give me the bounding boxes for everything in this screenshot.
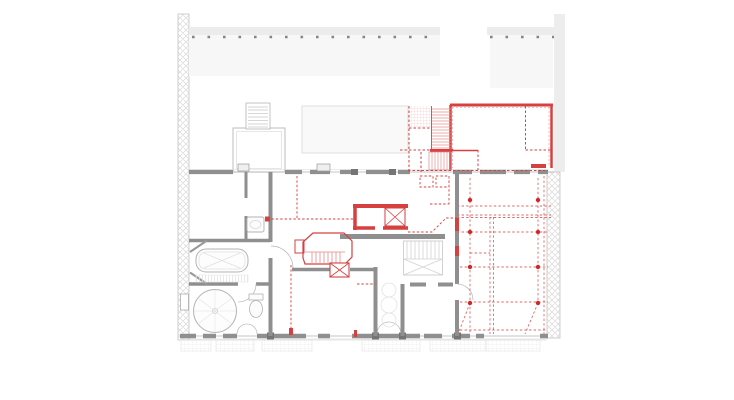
annex-grid-corner: [409, 106, 431, 127]
vestibule-ornament: [382, 313, 396, 327]
apron: [362, 340, 420, 351]
left-hatch-wall: [178, 14, 189, 340]
porch-stair-treads: [248, 107, 268, 127]
right-wall-strip: [554, 14, 565, 172]
vestibule-ornament: [382, 283, 396, 297]
red-wall-overlay: [455, 246, 459, 256]
toilet-bowl: [250, 301, 263, 318]
vanity: [247, 217, 264, 232]
vestibule-ornament: [381, 297, 397, 313]
annex-lower-stair-treads: [432, 152, 447, 170]
wall-pillar: [389, 169, 396, 175]
annex-stair-treads: [432, 109, 451, 148]
annex-sill: [531, 164, 546, 168]
deck-band-right: [487, 27, 555, 35]
toilet-tank: [249, 294, 263, 300]
plan-elements: [178, 14, 565, 351]
deck-band-left: [189, 27, 440, 35]
vestibule-door-arcs: [377, 322, 401, 334]
apron: [430, 340, 486, 351]
window-sill: [317, 164, 330, 171]
red-wall-tick: [354, 330, 357, 337]
demolition-dot: [536, 265, 540, 269]
wall-pillar: [351, 169, 358, 175]
red-stair-treads: [305, 252, 345, 264]
window-sill: [238, 164, 249, 171]
demolition-dot: [536, 230, 540, 234]
annex-wall-hatch: [452, 107, 550, 168]
right-hatch-wall: [547, 172, 560, 338]
red-wall-overlay: [455, 218, 459, 231]
door-arc-right-room: [457, 284, 473, 300]
demolition-dot: [468, 265, 472, 269]
lawn-area-right: [490, 35, 553, 88]
apron: [262, 340, 312, 351]
annex-stair-rails: [432, 106, 451, 150]
demolition-dot: [536, 301, 540, 305]
floorplan-svg: [0, 0, 734, 400]
chimney-xbox-cross: [385, 208, 405, 226]
floorplan-canvas: [0, 0, 734, 400]
lawn-area-left: [189, 35, 440, 76]
tile-strip: [196, 275, 248, 282]
demolition-dot: [468, 230, 472, 234]
french-door-arcs: [237, 324, 257, 334]
left-wall-niche: [181, 294, 189, 310]
apron: [216, 340, 254, 351]
demolition-dot: [536, 198, 540, 202]
apron: [181, 340, 211, 351]
red-marker-square: [265, 217, 270, 222]
roof-outline: [302, 106, 408, 153]
door-arc-hall: [271, 246, 293, 268]
apron: [486, 340, 540, 351]
demolition-dot: [468, 198, 472, 202]
demolition-dot: [468, 301, 472, 305]
red-wall-tick: [289, 328, 293, 335]
